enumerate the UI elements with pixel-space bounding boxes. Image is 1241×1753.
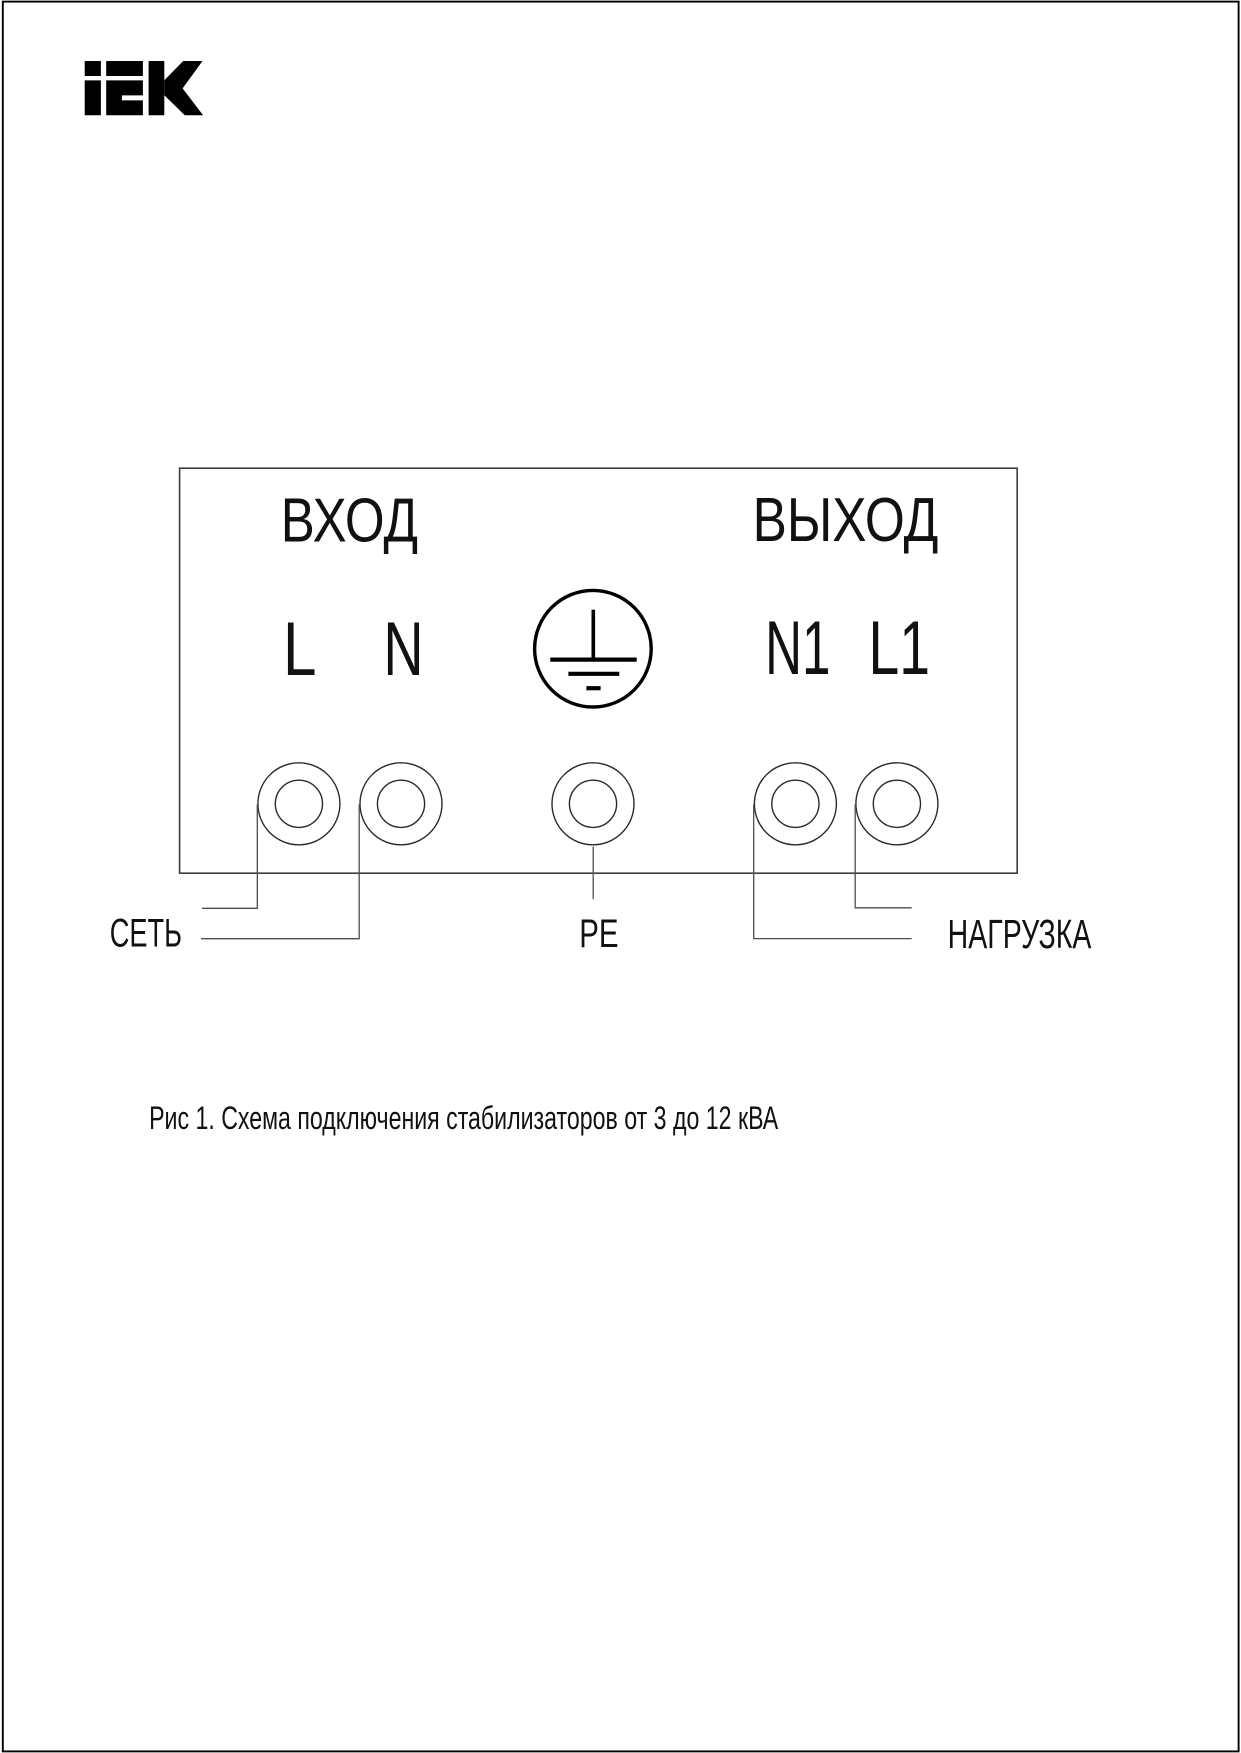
svg-text:N: N [383, 608, 423, 692]
svg-text:СЕТЬ: СЕТЬ [110, 911, 182, 955]
svg-text:НАГРУЗКА: НАГРУЗКА [948, 912, 1092, 957]
svg-text:L1: L1 [869, 607, 931, 692]
svg-text:Рис 1. Схема подключения стаби: Рис 1. Схема подключения стабилизаторов … [149, 1101, 778, 1137]
svg-text:N1: N1 [765, 605, 830, 691]
svg-text:L: L [283, 606, 316, 691]
svg-text:ВЫХОД: ВЫХОД [753, 485, 939, 555]
svg-text:РЕ: РЕ [579, 912, 618, 956]
svg-text:ВХОД: ВХОД [281, 487, 418, 556]
